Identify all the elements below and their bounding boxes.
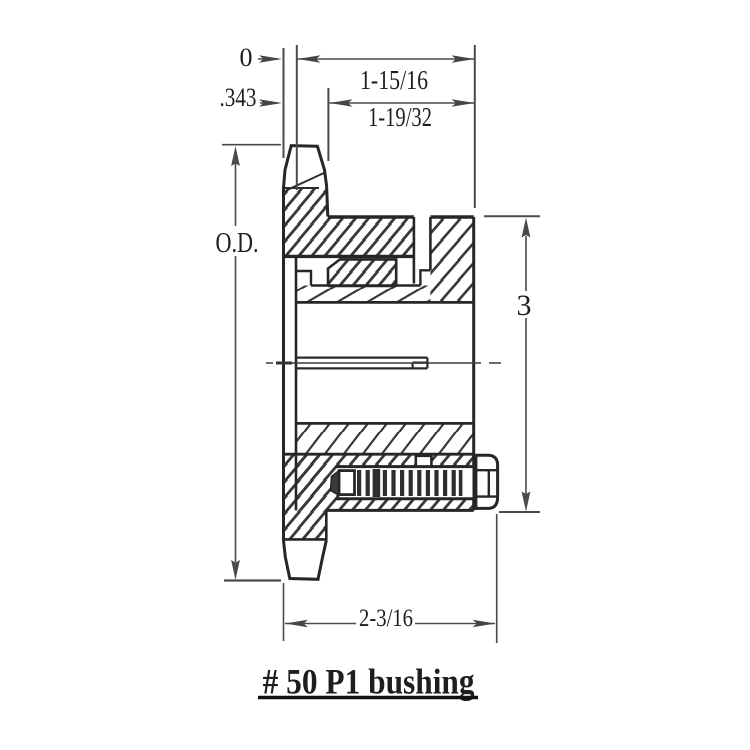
svg-text:2-3/16: 2-3/16	[359, 605, 413, 632]
svg-text:3: 3	[517, 289, 532, 322]
svg-text:0: 0	[240, 43, 253, 72]
svg-text:# 50 P1 bushing: # 50 P1 bushing	[263, 662, 475, 702]
svg-text:1-19/32: 1-19/32	[368, 102, 432, 132]
svg-text:.343: .343	[220, 83, 257, 112]
svg-text:1-15/16: 1-15/16	[360, 65, 428, 95]
svg-text:O.D.: O.D.	[216, 227, 259, 259]
